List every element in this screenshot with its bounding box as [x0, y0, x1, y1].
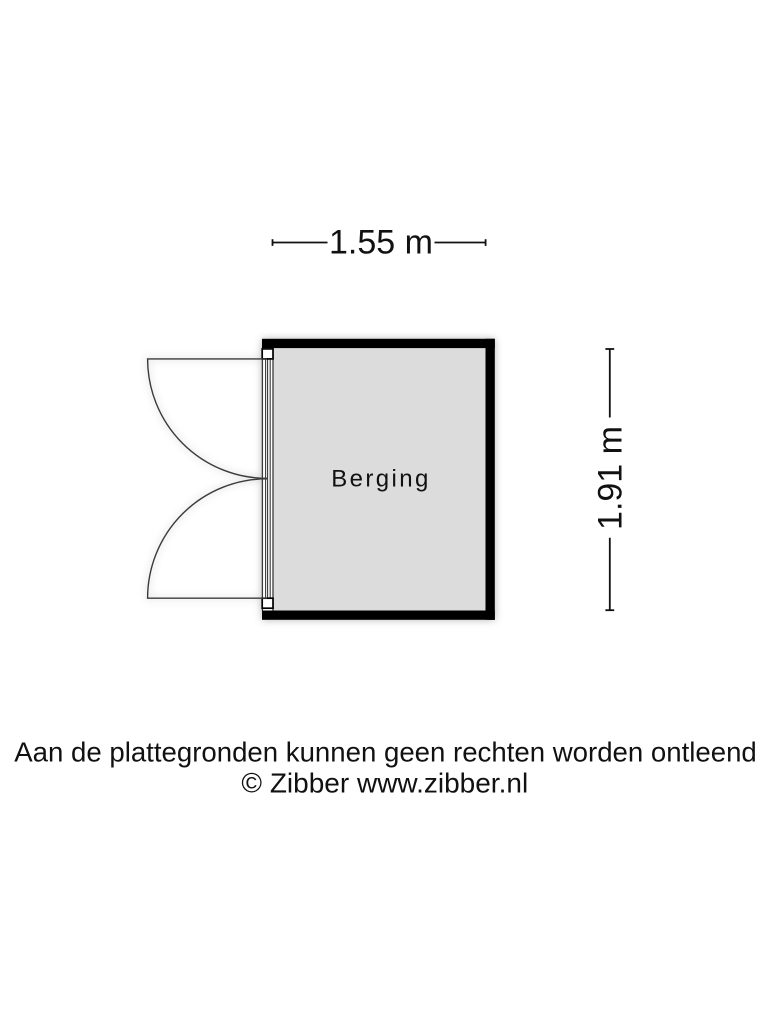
svg-text:1.91 m: 1.91 m: [592, 426, 630, 530]
svg-text:1.55 m: 1.55 m: [329, 224, 433, 262]
svg-text:Berging: Berging: [331, 466, 431, 493]
svg-text:© Zibber www.zibber.nl: © Zibber www.zibber.nl: [241, 768, 528, 799]
svg-text:Aan de plattegronden kunnen ge: Aan de plattegronden kunnen geen rechten…: [14, 737, 757, 768]
